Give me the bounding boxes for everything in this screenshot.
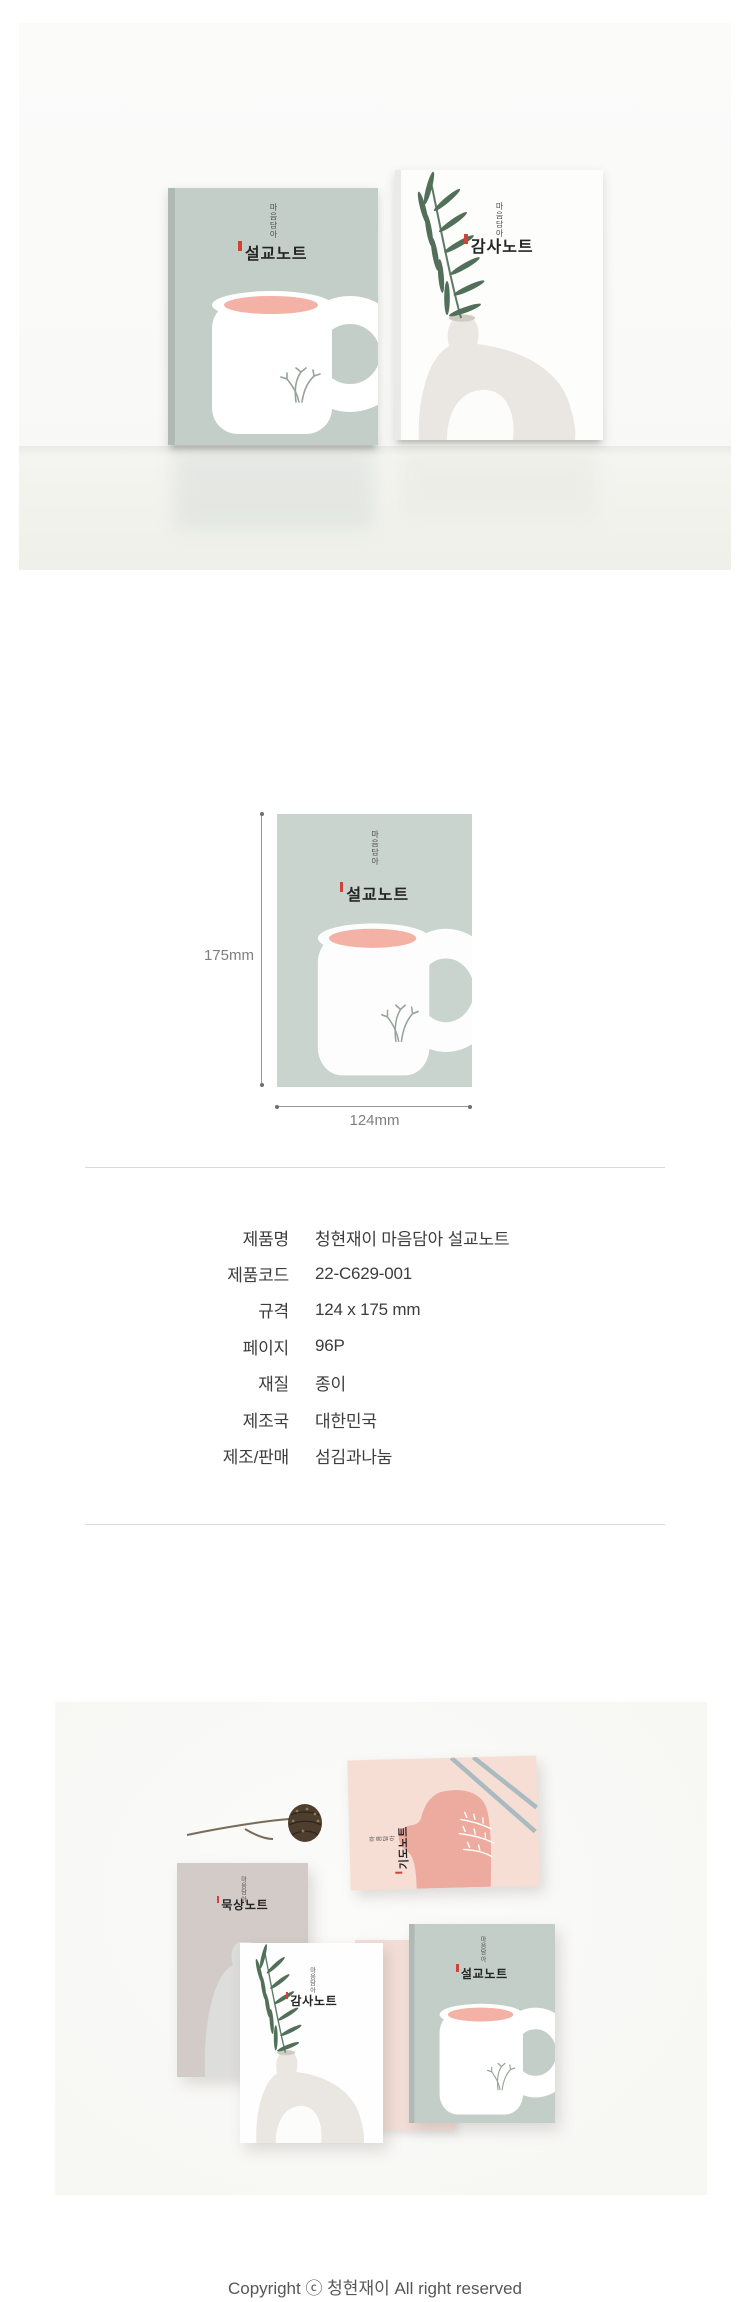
spec-row: 재질 종이	[85, 1365, 665, 1401]
width-dimension-line	[277, 1106, 472, 1107]
height-dimension-line	[261, 814, 262, 1087]
reflection-sage	[174, 450, 374, 530]
footer: Copyright ⓒ 청현재이 All right reserved	[0, 2274, 750, 2299]
spec-label: 재질	[85, 1370, 289, 1395]
divider-top	[85, 1167, 665, 1168]
brand-tagline: 마음담아	[269, 203, 277, 239]
brand-tagline: 마음담아	[368, 1837, 395, 1844]
copyright-text: Copyright ⓒ 청현재이 All right reserved	[228, 2279, 522, 2298]
spec-row: 제품명 청현재이 마음담아 설교노트	[85, 1219, 665, 1255]
reflection-white	[401, 450, 597, 520]
spec-label: 규격	[85, 1297, 289, 1322]
brand-tagline: 마음담아	[495, 202, 503, 238]
red-tick-icon	[340, 882, 344, 892]
red-tick-icon	[456, 1964, 459, 1971]
spec-value: 청현재이 마음담아 설교노트	[289, 1225, 509, 1250]
red-tick-icon	[238, 241, 242, 251]
notebook-sermon-flatlay: 마음담아 설교노트	[409, 1924, 555, 2123]
notebook-thanks-photo: 마음담아 감사노트	[395, 170, 603, 440]
brand-tagline: 마음담아	[309, 1967, 315, 1994]
spec-label: 제품코드	[85, 1261, 289, 1286]
spec-row: 규격 124 x 175 mm	[85, 1292, 665, 1328]
spec-row: 제품코드 22-C629-001	[85, 1255, 665, 1291]
notebook-prayer-photo: 마음담아 기도노트	[347, 1756, 539, 1891]
height-dimension-label: 175mm	[156, 948, 254, 963]
flatlay-photo: 마음담아 기도노트 마음담아 묵상노트	[55, 1702, 707, 2195]
dimension-dot	[275, 1105, 279, 1109]
dimension-dot	[260, 1083, 264, 1087]
cover-title: 설교노트	[277, 888, 472, 904]
cover-title: 감사노트	[240, 1995, 383, 2007]
spec-rows: 제품명 청현재이 마음담아 설교노트 제품코드 22-C629-001 규격 1…	[85, 1219, 665, 1474]
notebook-thanks-flatlay: 마음담아 감사노트	[240, 1943, 383, 2143]
spec-value: 124 x 175 mm	[289, 1300, 420, 1320]
brand-tagline: 마음담아	[371, 830, 379, 866]
dimension-dot	[468, 1105, 472, 1109]
cover-title: 묵상노트	[177, 1899, 308, 1911]
red-tick-icon	[395, 1871, 402, 1874]
diagram-cover-sermon: 마음담아 설교노트	[277, 814, 472, 1087]
red-tick-icon	[286, 1992, 289, 1999]
cover-title: 설교노트	[168, 247, 378, 263]
cover-title: 감사노트	[395, 240, 603, 256]
spec-row: 제조국 대한민국	[85, 1401, 665, 1437]
spec-value: 22-C629-001	[289, 1264, 412, 1284]
pinecone-decoration	[185, 1787, 345, 1859]
spec-label: 제품명	[85, 1225, 289, 1250]
notebook-sermon-photo: 마음담아 설교노트	[168, 188, 378, 445]
cover-title: 설교노트	[409, 1968, 555, 1980]
spec-row: 제조/판매 섬김과나눔	[85, 1437, 665, 1473]
red-tick-icon	[217, 1896, 220, 1903]
hero-photo: 마음담아 설교노트	[19, 23, 731, 570]
brand-tagline: 마음담아	[479, 1936, 485, 1963]
product-detail-page: 마음담아 설교노트	[0, 0, 750, 2302]
divider-bottom	[85, 1524, 665, 1525]
spec-label: 페이지	[85, 1334, 289, 1359]
shelf-surface	[19, 446, 731, 570]
spec-label: 제조국	[85, 1407, 289, 1432]
spec-value: 96P	[289, 1336, 345, 1356]
dimension-dot	[260, 812, 264, 816]
spec-row: 페이지 96P	[85, 1328, 665, 1364]
cover-title: 기도노트	[397, 1785, 411, 1890]
spec-label: 제조/판매	[85, 1443, 289, 1468]
red-tick-icon	[464, 234, 468, 244]
spec-value: 대한민국	[289, 1407, 377, 1432]
rotated-cover-text: 마음담아 기도노트	[347, 1756, 539, 1890]
spec-value: 섬김과나눔	[289, 1443, 392, 1468]
width-dimension-label: 124mm	[277, 1113, 472, 1128]
spec-value: 종이	[289, 1370, 346, 1395]
